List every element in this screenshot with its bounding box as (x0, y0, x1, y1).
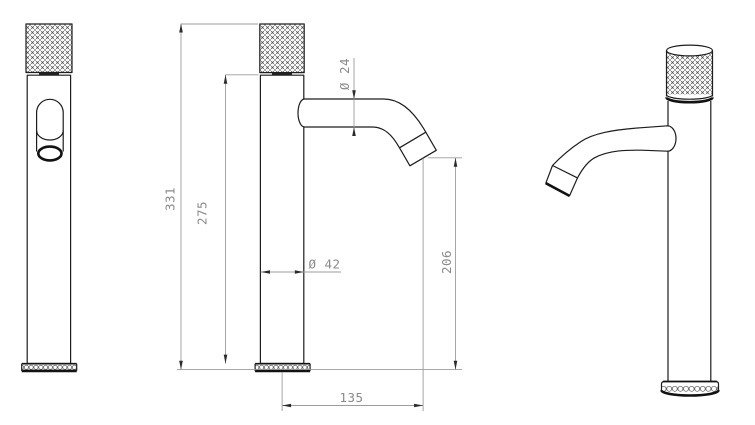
front-spout-outlet (38, 147, 61, 161)
dim-outlet-height: 206 (423, 158, 462, 411)
side-knob-knurled (260, 24, 304, 73)
dim-spout-reach-label: 135 (339, 390, 363, 405)
dim-overall-height: 331 (163, 24, 259, 370)
persp-spout (546, 126, 676, 196)
side-body (260, 75, 303, 363)
persp-knob-knurl (667, 51, 713, 95)
arrowhead-down (454, 361, 458, 370)
dim-body-height-label: 275 (195, 201, 210, 225)
front-knob-knurled (26, 24, 72, 73)
front-view (22, 24, 77, 371)
arrowhead-down (352, 90, 356, 99)
persp-knob-top-face (667, 45, 713, 56)
side-spout (298, 99, 436, 166)
dim-body-diameter-label: Ø 42 (308, 257, 340, 272)
perspective-view (546, 45, 719, 396)
persp-base (662, 382, 719, 396)
technical-drawing-canvas: 331 275 Ø 24 Ø 42 206 (0, 0, 755, 425)
persp-knob-band-upper (667, 95, 713, 100)
dim-overall-height-label: 331 (163, 187, 178, 211)
dimensions: 331 275 Ø 24 Ø 42 206 (163, 24, 463, 412)
arrowhead-up (179, 24, 183, 33)
arrowhead-up (224, 75, 228, 84)
dim-outlet-height-label: 206 (439, 250, 454, 274)
arrowhead-up (454, 158, 458, 167)
dim-spout-diameter-label: Ø 24 (337, 58, 352, 90)
arrowhead-down (224, 355, 228, 364)
front-base (22, 364, 77, 371)
arrowhead-left (282, 404, 291, 408)
arrowhead-up (352, 127, 356, 136)
dim-spout-reach: 135 (282, 372, 423, 411)
dim-body-height: 275 (195, 75, 259, 364)
front-body (27, 75, 70, 363)
persp-knob (667, 45, 713, 102)
arrowhead-right (414, 404, 423, 408)
drawing-page: 331 275 Ø 24 Ø 42 206 (0, 0, 755, 425)
side-neck (272, 73, 292, 76)
arrowhead-down (179, 361, 183, 370)
